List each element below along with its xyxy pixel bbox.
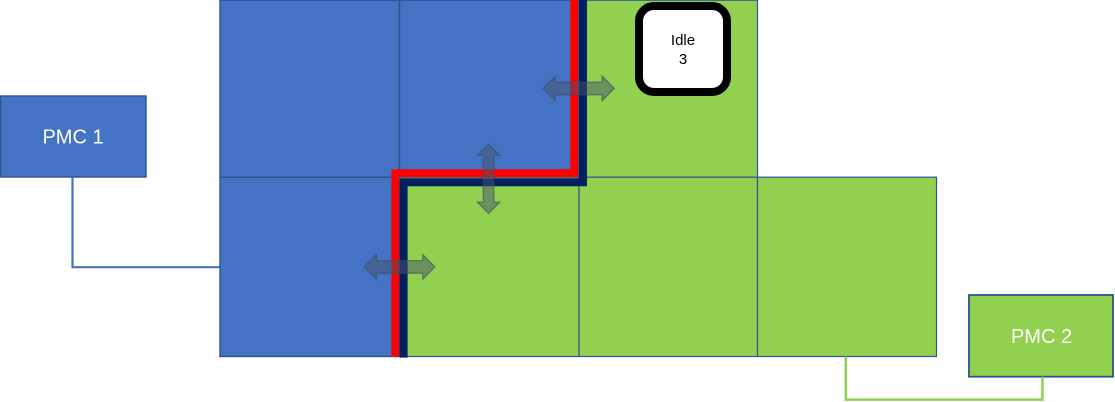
svg-text:PMC 2: PMC 2 bbox=[1011, 326, 1072, 348]
svg-text:3: 3 bbox=[679, 51, 687, 68]
svg-text:Idle: Idle bbox=[671, 32, 695, 49]
svg-text:PMC 1: PMC 1 bbox=[42, 127, 103, 149]
